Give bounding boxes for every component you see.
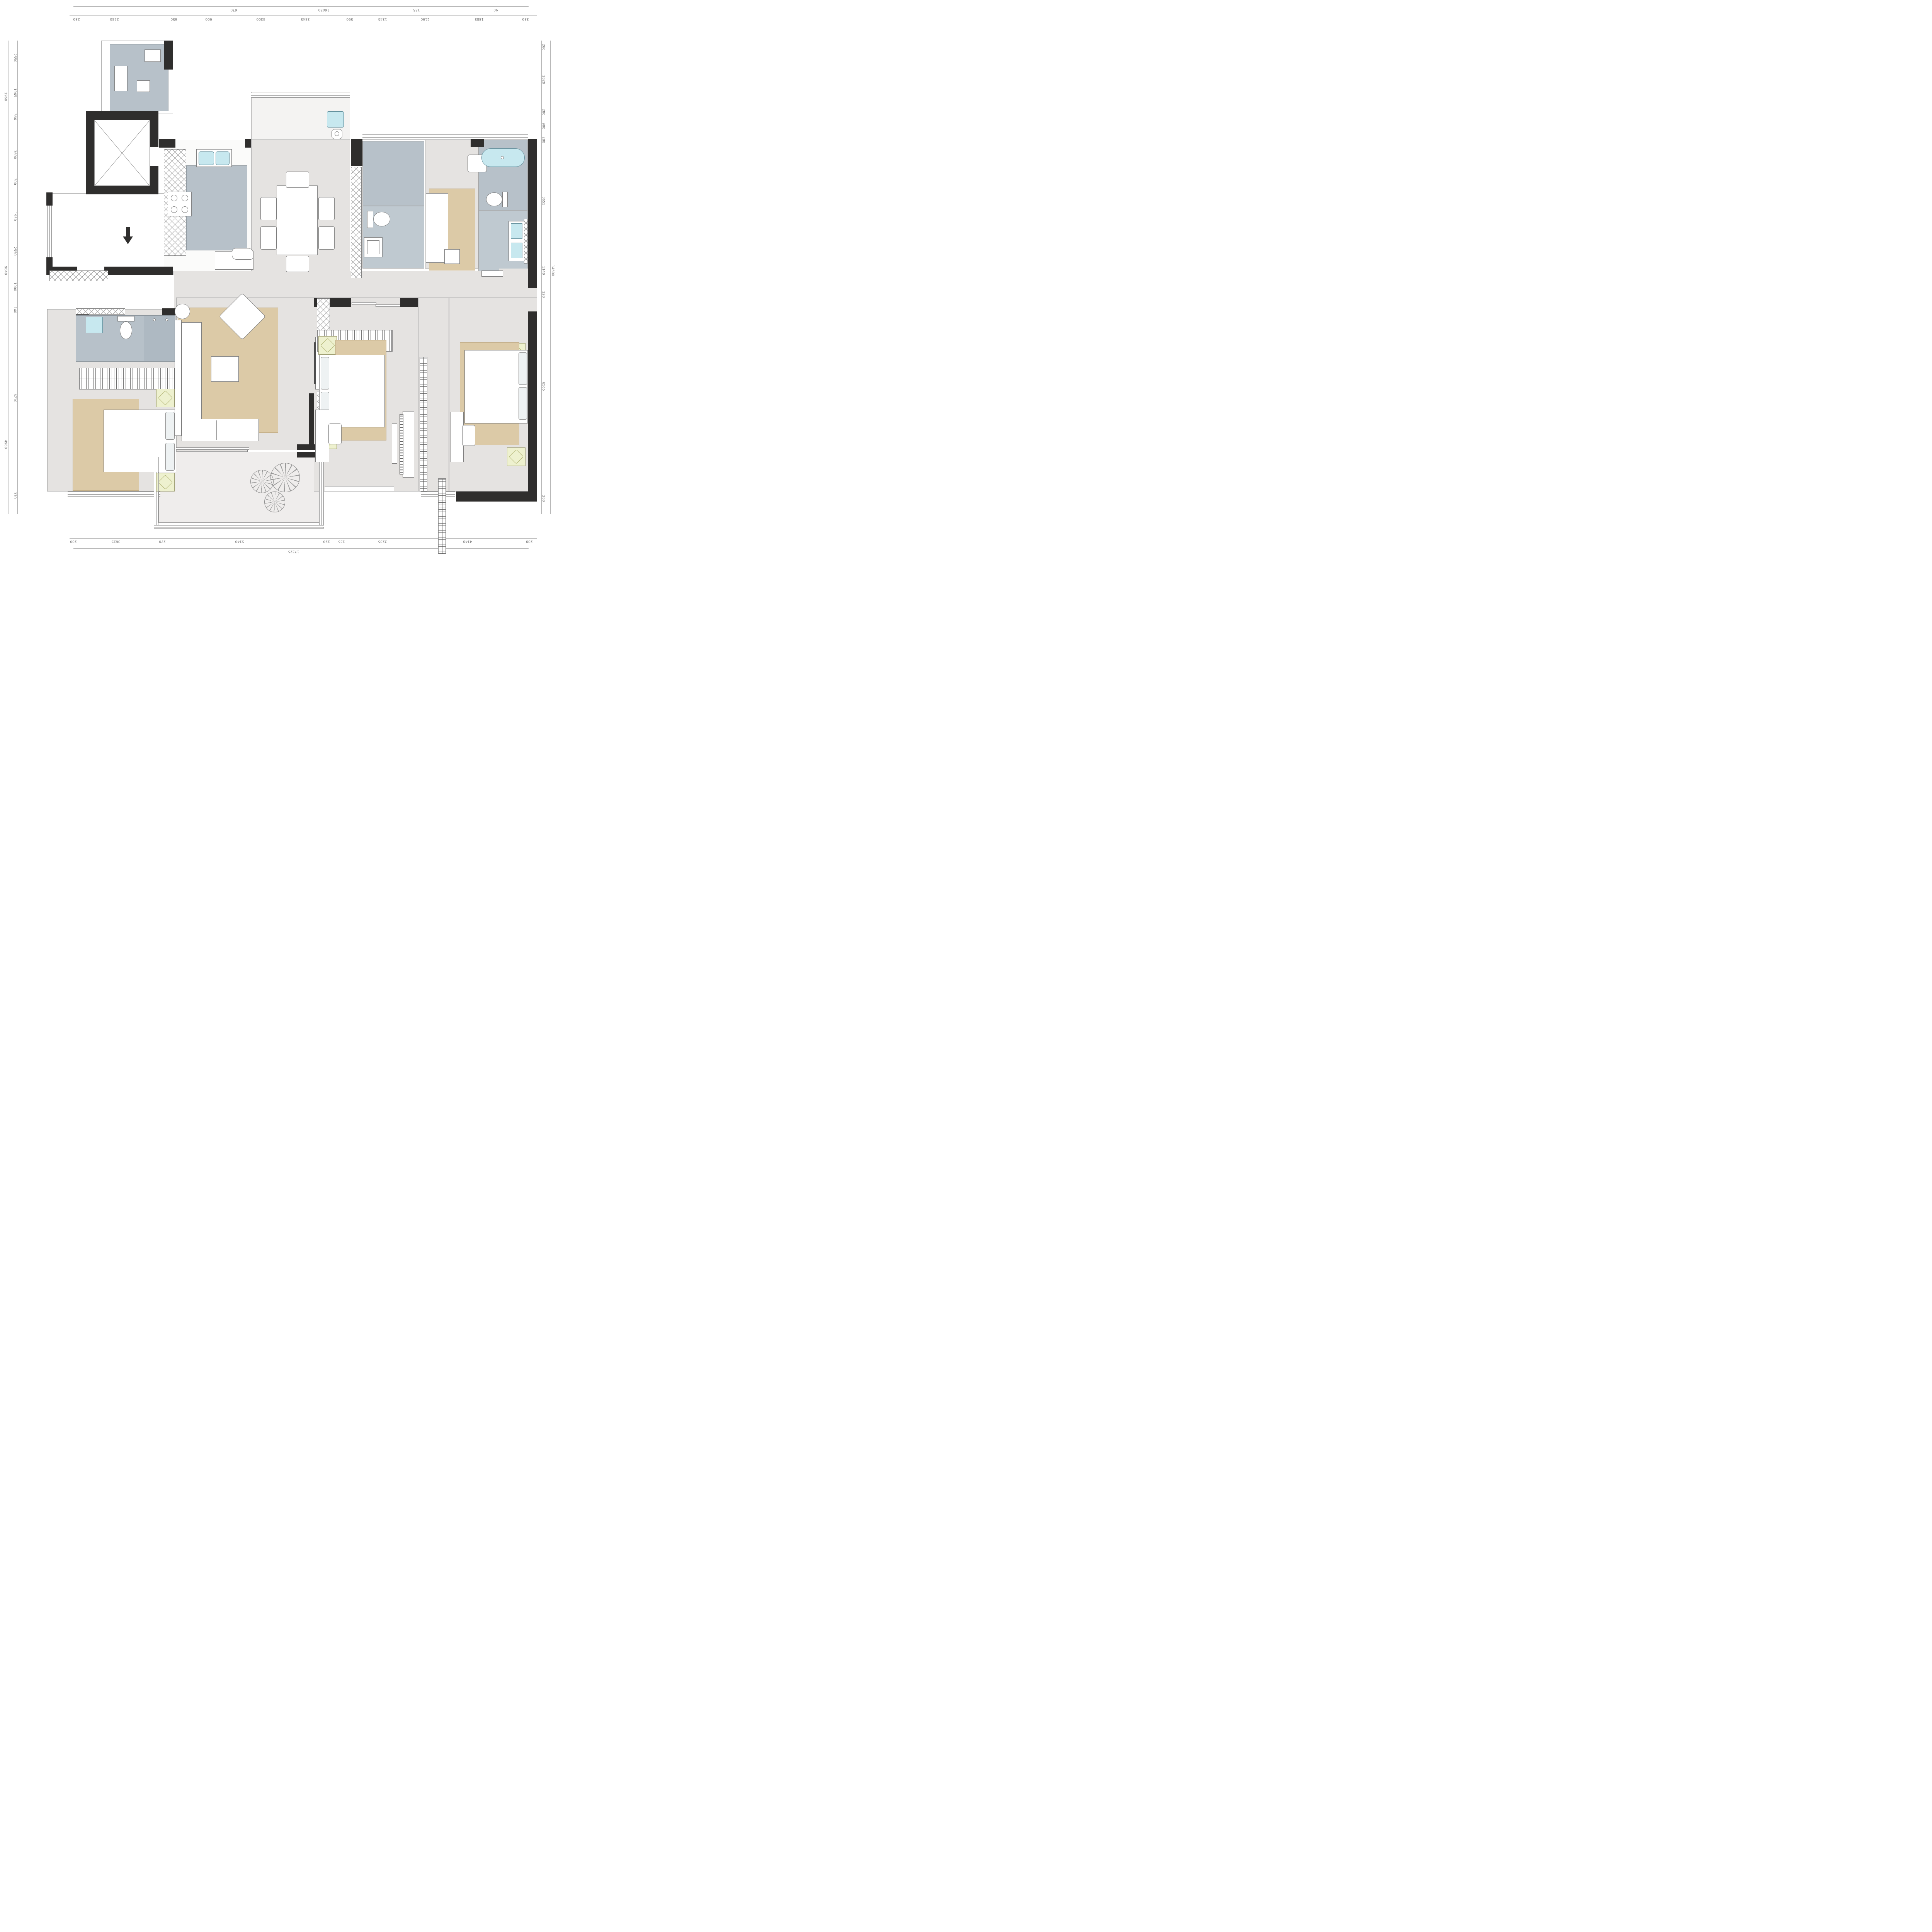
sliding-door [376,304,400,307]
wall [86,111,158,120]
dim-line-top-inner [70,15,537,16]
dining-chair [286,172,309,188]
dim-label: 670 [230,8,237,12]
wall [86,186,158,194]
hall-cabinet [481,270,503,277]
sink-basin [199,151,214,165]
dim-label: 370 [13,492,17,498]
sofa-seats [182,322,202,420]
wall [456,492,537,502]
shower-head [153,318,156,321]
dim-label: 280 [541,109,545,115]
entry-arrow-stem [126,227,130,236]
dim-label: 330 [522,17,529,21]
dining-chair [286,256,309,272]
toilet-bowl [486,192,502,206]
dim-label: 1965 [13,88,17,97]
vanity-cabinet-strip [524,219,528,264]
dining-chair [260,197,277,220]
dim-label: 2550 [13,54,17,63]
dim-label: 650 [170,17,177,21]
dim-label: 260 [541,44,545,50]
dim-label: 3235 [378,539,387,543]
bathtub-drain [501,156,504,159]
desk-chair [328,423,342,444]
burner [171,195,177,201]
dim-label: 280 [541,495,545,502]
floor-plan-canvas: 670 16030 135 90 280 2530 650 900 3300 3… [0,0,580,554]
dim-label: 140 [13,306,17,313]
wall [245,139,251,148]
dim-label: 3655 [541,197,545,206]
plant [264,492,285,512]
dim-label: 3345 [301,17,310,21]
pillow [165,412,175,440]
dim-line-right-outer [550,41,551,514]
dim-label: 3625 [112,539,121,543]
bedroom2-desk [315,410,329,462]
window [251,93,350,98]
wall [351,139,362,166]
dining-chair [260,226,277,250]
wall [86,111,94,194]
dim-label: 135 [413,8,420,12]
dim-label: 3300 [257,17,265,21]
toilet-tank [367,211,373,228]
shower-head [165,318,168,321]
sink-basin [216,151,230,165]
shower-area [144,315,175,362]
window [325,486,394,491]
sofa-corner-seats [182,419,259,441]
plant [250,470,274,493]
desk-chair [462,425,475,446]
dim-label: 4148 [463,539,472,543]
sliding-door [352,302,376,304]
entry-bench [49,270,108,281]
dim-label: 280 [541,136,545,143]
water-heater [137,80,150,92]
dining-chair [318,226,335,250]
dim-line-top-outer [73,6,529,7]
master-wardrobe [79,368,175,389]
dining-chair [318,197,335,220]
study-ottoman [444,249,460,264]
dim-label: 280 [70,539,77,543]
dim-label: 270 [159,539,165,543]
sofa-seat-divider [216,420,217,440]
dim-label: 4980 [3,440,7,449]
sofa-back [175,320,182,436]
toilet-bowl [373,212,390,226]
sliding-door [247,450,321,452]
dim-label: 2190 [421,17,430,21]
master-bath-sink [86,317,103,333]
window [68,492,160,497]
burner [182,195,188,201]
master-bath-cabinet [76,308,125,315]
toilet-tank [502,192,508,207]
nightstand [318,336,337,355]
window [47,202,52,258]
dim-label: 1345 [378,17,387,21]
dim-line-bottom-outer [73,548,529,549]
dim-label: 14600 [551,265,554,276]
tv-screen [314,342,316,384]
wall [150,166,158,194]
pillow [519,352,527,385]
dim-line-left-outer [8,41,9,514]
study-sofa-seatline [433,196,433,260]
kitchen-clutter [232,248,253,260]
dim-label: 1950 [13,212,17,221]
pillow [519,387,527,420]
wall [528,311,537,492]
closet-rack [438,478,446,554]
dim-label: 1000 [13,282,17,291]
dim-label: 2530 [110,17,119,21]
dim-label: 17325 [288,549,299,553]
dim-label: 6710 [13,394,17,403]
wall [400,298,418,307]
dim-label: 366 [13,113,17,120]
vanity-basin [367,240,379,254]
dim-label: 120 [541,291,545,298]
window [362,134,528,139]
coffee-table [211,356,239,382]
guest-bath-shower [362,141,424,206]
entry-hall [47,193,174,275]
bedroom3-desk [451,412,464,462]
dim-label: 16030 [318,8,330,12]
window [319,451,324,525]
dim-label: 9840 [3,266,7,275]
dim-line-left-inner [17,41,18,514]
dining-table [277,185,318,255]
entry-arrow-icon [123,236,133,244]
burner [171,206,177,213]
burner [182,206,188,213]
dim-label: 288 [526,539,532,543]
dim-label: 900 [541,122,545,129]
dim-label: 220 [323,539,330,543]
vanity-basin [511,243,522,258]
wall [46,192,53,206]
tv-cabinet [317,298,330,334]
wall [309,393,314,457]
dim-label: 3690 [13,150,17,159]
dim-label: 5140 [235,539,244,543]
wall [159,139,175,148]
sliding-door [176,447,249,450]
dim-label: 590 [346,17,353,21]
wall [471,139,484,147]
toilet-bowl [120,321,132,339]
nightstand [507,447,526,466]
dim-label: 2550 [13,247,17,256]
wall [162,308,176,315]
toilet-tank [117,316,134,321]
closet-rack [420,357,427,492]
dim-label: 900 [205,17,212,21]
dim-label: 1820 [541,75,545,84]
plant [270,463,300,492]
piano [403,411,414,478]
piano-bench [392,423,397,464]
dim-label: 1960 [3,92,7,101]
vanity-basin [511,223,522,239]
dim-line-bottom-inner [70,538,537,539]
floor-drain-hole [335,131,339,136]
mop-sink [327,111,344,128]
kitchen-island [186,165,247,250]
dining-tall-cabinet [351,167,362,278]
cooktop [168,192,192,216]
dim-label: 280 [73,17,80,21]
nightstand [156,389,175,407]
dim-label: 6565 [541,382,545,391]
dim-label: 300 [13,178,17,185]
wall [150,120,158,147]
wall [104,267,173,275]
dim-label: 135 [338,539,345,543]
dim-label: 90 [493,8,498,12]
wall [528,139,537,288]
dim-label: 1140 [541,266,545,275]
round-side-table [175,304,190,319]
ac-unit [114,66,128,91]
dim-label: 1885 [475,17,484,21]
ac-unit [145,49,161,62]
wall [164,41,173,70]
piano-keys [400,414,403,474]
pillow [321,357,329,389]
